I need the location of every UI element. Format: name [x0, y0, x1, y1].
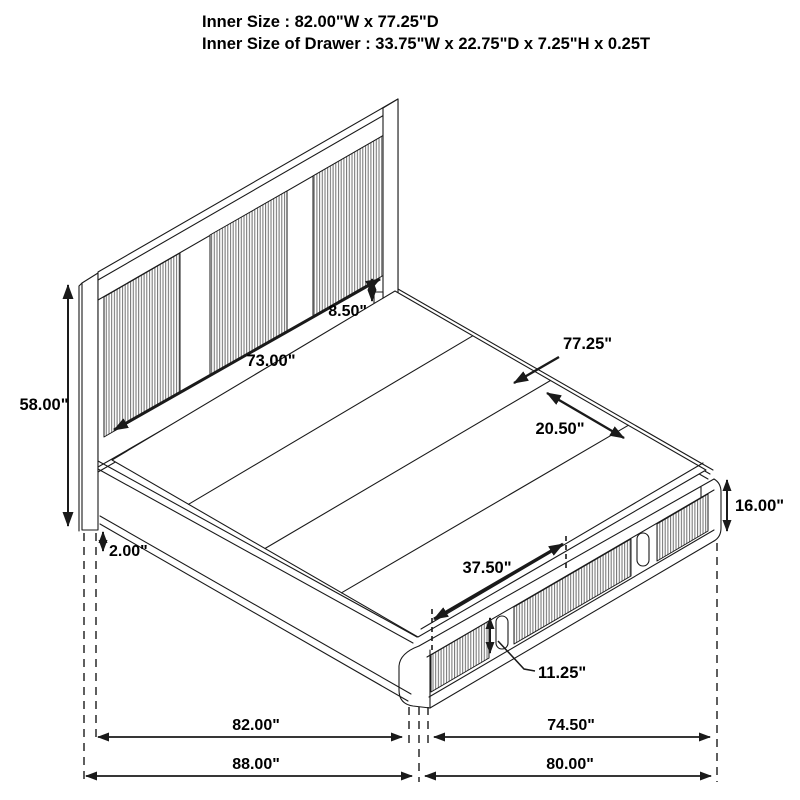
drawer-handle-left: [496, 616, 508, 649]
headboard-left-post: [82, 273, 98, 530]
dim-base-depth: 74.50": [434, 717, 710, 737]
dim-footboard-height-label: 16.00": [735, 497, 784, 515]
dim-overall-depth: 80.00": [425, 756, 711, 776]
figure-title-line1: Inner Size : 82.00"W x 77.25"D: [202, 13, 439, 31]
dim-rail-floor-gap: 2.00": [103, 532, 148, 560]
dim-overall-width-label: 88.00": [232, 756, 280, 773]
dim-inner-depth-label: 77.25": [563, 335, 612, 353]
dim-inner-width-label: 73.00": [246, 352, 295, 370]
footboard-right-end-cap: [714, 479, 721, 541]
headboard-right-post: [383, 99, 398, 322]
dim-base-width-label: 82.00": [232, 717, 280, 734]
drawer-fluted-panel-3: [657, 494, 708, 561]
drawer-handle-right: [637, 533, 649, 566]
dim-overall-width: 88.00": [86, 756, 412, 776]
dim-panel-gap-label: 8.50": [328, 303, 367, 320]
dim-drawer-width-label: 37.50": [462, 559, 511, 577]
dim-base-width: 82.00": [98, 717, 402, 737]
bed-dimension-diagram-page: Inner Size : 82.00"W x 77.25"D Inner Siz…: [0, 0, 800, 800]
dim-drawer-height-label: 11.25": [538, 664, 586, 682]
dim-headboard-height: 58.00": [19, 285, 68, 526]
dim-rail-floor-gap-label: 2.00": [109, 543, 148, 560]
bed-dimension-diagram: Inner Size : 82.00"W x 77.25"D Inner Siz…: [0, 0, 800, 800]
dim-base-depth-label: 74.50": [547, 717, 595, 734]
drawer-fluted-panel-1: [431, 621, 489, 692]
dim-overall-depth-label: 80.00": [546, 756, 594, 773]
figure-title-line2: Inner Size of Drawer : 33.75"W x 22.75"D…: [202, 35, 650, 53]
dim-slat-panel-label: 20.50": [535, 420, 584, 438]
dim-footboard-height: 16.00": [727, 480, 784, 531]
dim-inner-depth: 77.25": [514, 335, 612, 383]
dim-headboard-height-label: 58.00": [19, 396, 68, 414]
